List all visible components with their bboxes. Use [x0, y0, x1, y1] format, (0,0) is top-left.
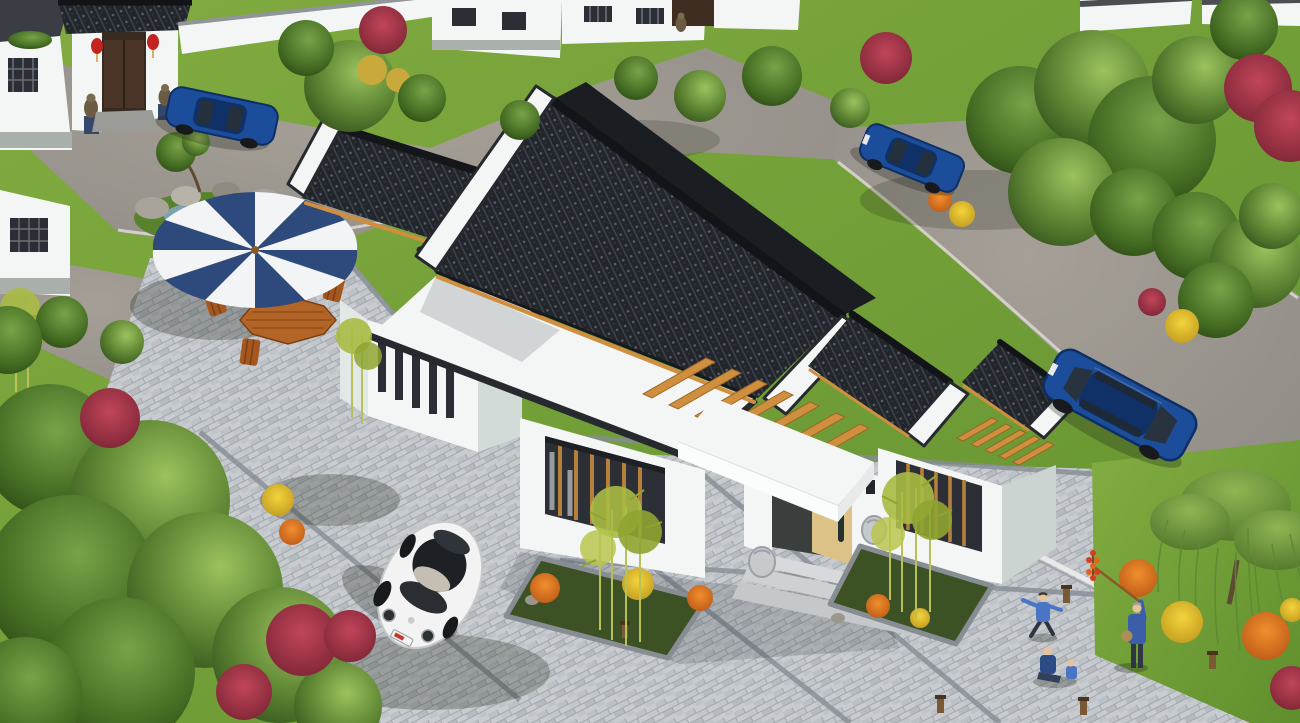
rendered-scene [0, 0, 1300, 723]
red-tree [359, 6, 407, 54]
red-flowering-tree [860, 32, 912, 84]
scene-canvas [0, 0, 1300, 723]
wall-stone-base [0, 132, 72, 148]
gate-rockery [8, 31, 52, 49]
shoulder-bag [1122, 631, 1133, 642]
parasol-pole-top [251, 246, 259, 254]
perimeter-wall-left [0, 190, 70, 296]
orange-flowers [687, 585, 713, 611]
gate-steps [92, 110, 158, 132]
red-shrub [80, 388, 140, 448]
